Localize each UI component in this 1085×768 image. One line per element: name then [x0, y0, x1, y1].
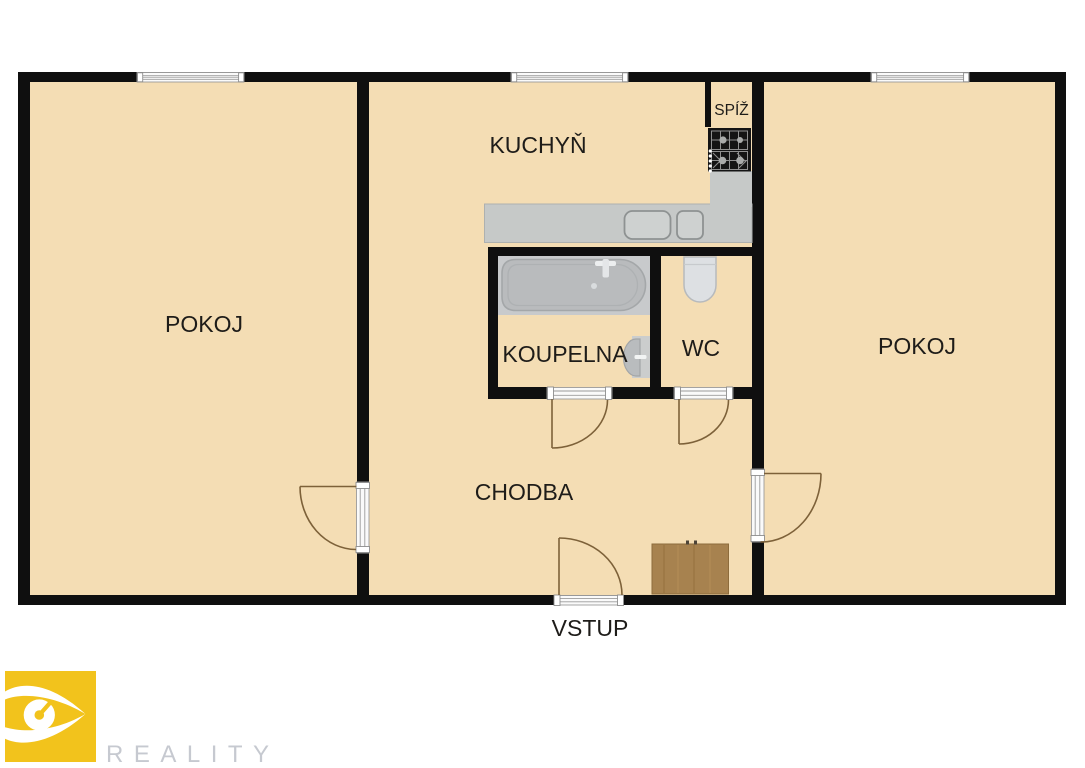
svg-text:WC: WC: [682, 335, 720, 361]
svg-text:KOUPELNA: KOUPELNA: [502, 341, 628, 367]
svg-text:CHODBA: CHODBA: [475, 479, 574, 505]
svg-text:VSTUP: VSTUP: [552, 615, 629, 641]
svg-text:SPÍŽ: SPÍŽ: [714, 102, 748, 119]
svg-text:REALITY: REALITY: [106, 741, 280, 768]
svg-text:POKOJ: POKOJ: [878, 333, 956, 359]
svg-text:POKOJ: POKOJ: [165, 311, 243, 337]
svg-text:KUCHYŇ: KUCHYŇ: [489, 132, 586, 158]
